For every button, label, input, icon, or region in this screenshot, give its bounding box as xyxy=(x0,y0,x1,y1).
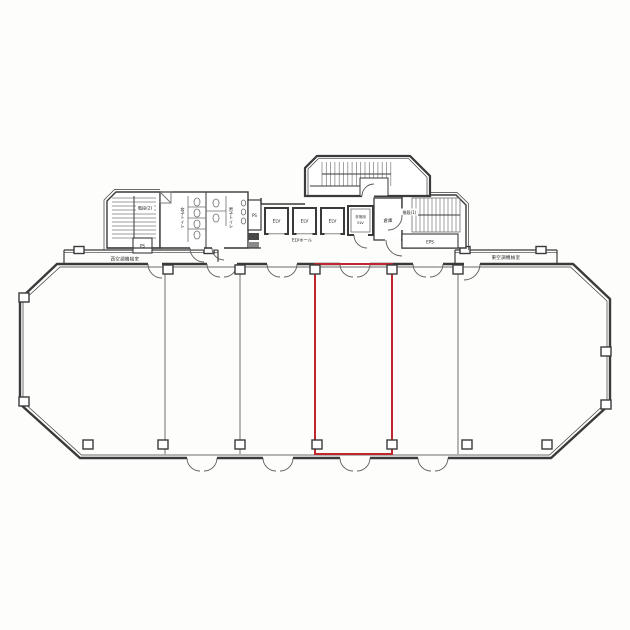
floor-plan: 階段(2) PS 女子トイレ 男子ト xyxy=(0,0,630,630)
label-elv-1: ELV xyxy=(273,219,281,225)
label-east-ac-room: 東空調機械室 xyxy=(492,254,521,261)
label-elv-3: ELV xyxy=(329,219,337,225)
emergency-elevator: 非常用 ELV xyxy=(348,206,373,248)
floor-plan-page: 階段(2) PS 女子トイレ 男子ト xyxy=(0,0,630,630)
duct-box-2 xyxy=(248,242,259,248)
elevator-bank: ELV ELV ELV 非常用 ELV 倉庫 ELVホール xyxy=(261,198,402,256)
top-stair-tower xyxy=(305,156,430,198)
stairwell-2: 階段(2) PS xyxy=(104,190,160,254)
storage-room: 倉庫 xyxy=(374,198,402,256)
label-storage: 倉庫 xyxy=(384,217,393,224)
label-emergency-elv-1: 非常用 xyxy=(355,214,366,219)
label-emergency-elv-2: ELV xyxy=(357,221,364,225)
label-mens-toilet: 男子トイレ xyxy=(229,207,234,229)
label-stairs-2: 階段(2) xyxy=(138,205,153,212)
label-eps: EPS xyxy=(426,240,434,245)
label-elv-hall: ELVホール xyxy=(292,238,312,243)
unit-partitions xyxy=(165,266,458,454)
label-ps: PS xyxy=(252,213,257,218)
label-west-ac-room: 西空調機械室 xyxy=(111,256,140,263)
label-stairs-1: 階段(1) xyxy=(403,209,417,215)
ps-shaft: PS xyxy=(248,200,261,248)
red-highlight-unit xyxy=(315,264,392,454)
label-elv-2: ELV xyxy=(301,219,309,225)
label-womens-toilet: 女子トイレ xyxy=(181,206,186,229)
tower-landing-room xyxy=(360,178,388,196)
duct-box xyxy=(248,233,259,240)
